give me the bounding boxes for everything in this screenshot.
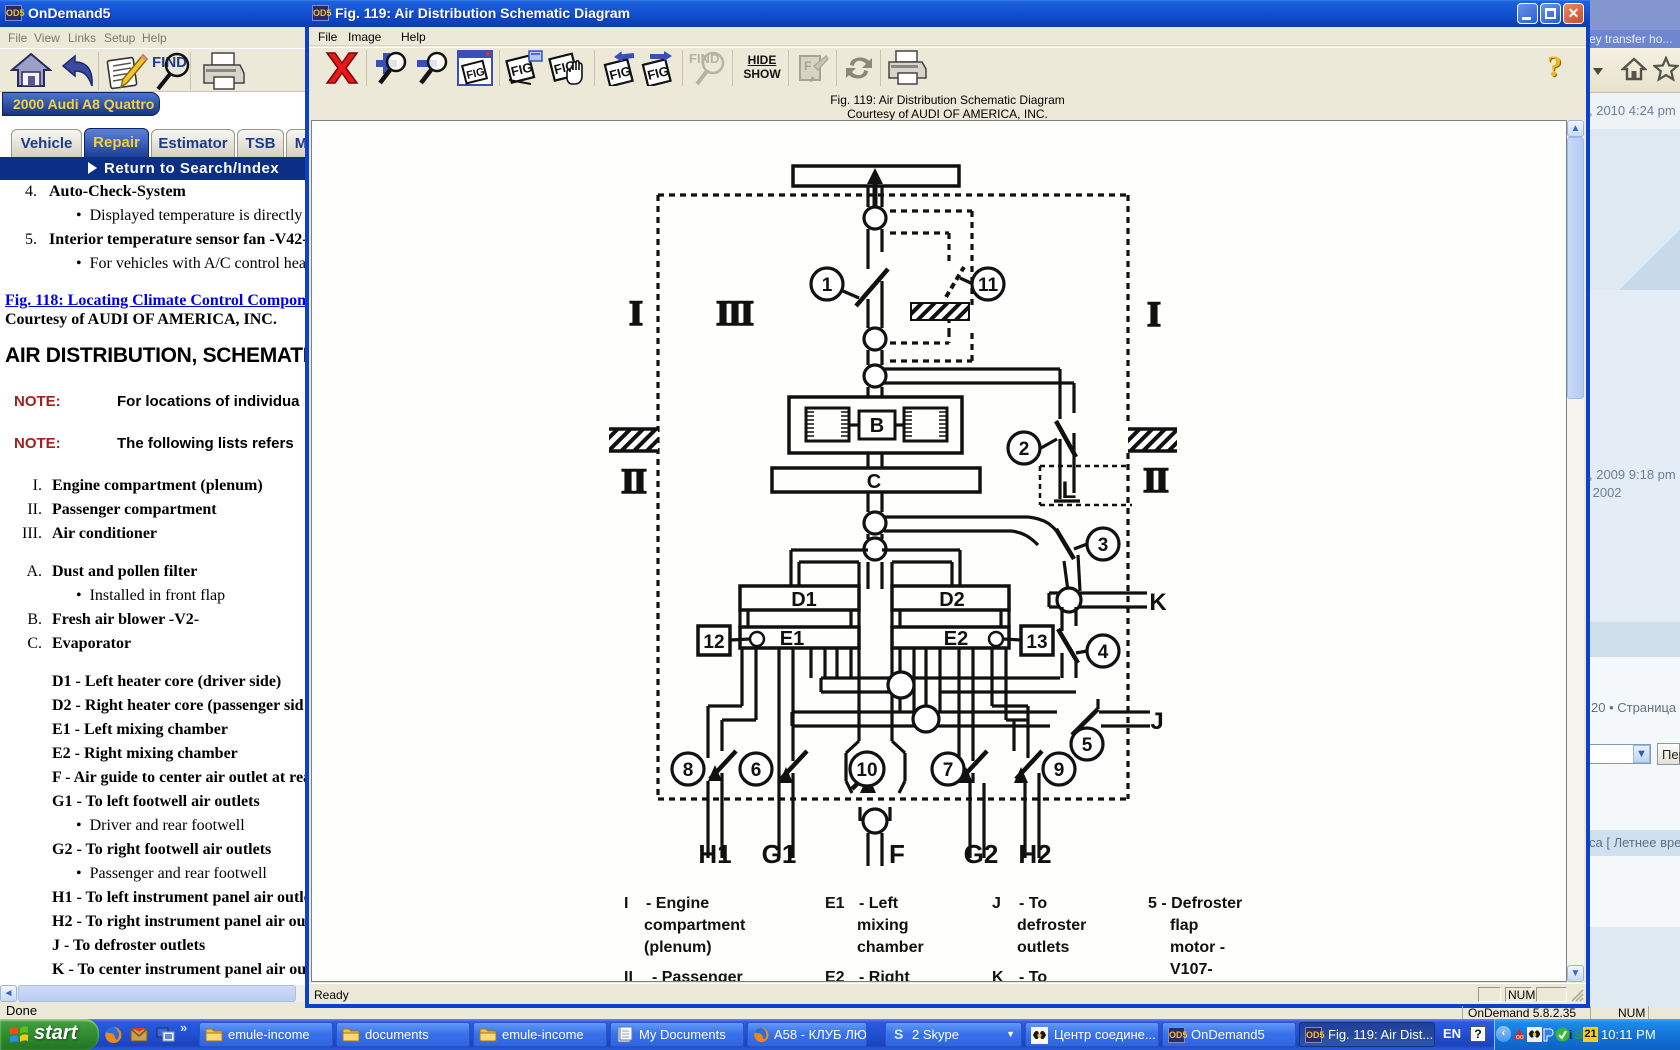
svg-text:E1: E1 — [825, 895, 845, 912]
svg-text:chamber: chamber — [857, 939, 924, 956]
svg-text:- To: - To — [1019, 895, 1047, 912]
svg-text:defroster: defroster — [1017, 917, 1086, 934]
svg-text:5: 5 — [1082, 735, 1093, 756]
svg-text:motor -: motor - — [1170, 939, 1225, 956]
svg-text:5 - Defroster: 5 - Defroster — [1148, 895, 1242, 912]
svg-text:K: K — [1149, 589, 1167, 616]
svg-text:II: II — [624, 969, 633, 982]
svg-text:13: 13 — [1026, 632, 1047, 653]
svg-text:II: II — [1143, 460, 1168, 500]
svg-text:- Right: - Right — [859, 969, 910, 982]
svg-text:- Engine: - Engine — [646, 895, 709, 912]
svg-text:C: C — [867, 471, 881, 493]
svg-text:F: F — [804, 59, 811, 73]
svg-text:L: L — [1062, 477, 1077, 504]
svg-text:J: J — [992, 895, 1001, 912]
svg-text:D2: D2 — [939, 589, 965, 611]
svg-text:E2: E2 — [944, 628, 968, 650]
svg-text:4: 4 — [1098, 642, 1109, 663]
svg-text:F: F — [889, 839, 905, 869]
svg-text:V107-: V107- — [1170, 961, 1213, 978]
svg-text:7: 7 — [943, 760, 954, 781]
svg-text:E2: E2 — [825, 969, 845, 982]
svg-text:- Left: - Left — [859, 895, 899, 912]
svg-text:12: 12 — [703, 632, 724, 653]
svg-text:8: 8 — [683, 760, 694, 781]
svg-text:mixing: mixing — [857, 917, 909, 934]
svg-text:G2: G2 — [964, 839, 999, 869]
svg-text:(plenum): (plenum) — [644, 939, 712, 956]
svg-text:flap: flap — [1170, 917, 1199, 934]
svg-text:3: 3 — [1098, 535, 1109, 556]
svg-text:II: II — [621, 461, 646, 501]
svg-text:I: I — [629, 293, 643, 333]
svg-text:9: 9 — [1054, 760, 1065, 781]
svg-text:J: J — [1150, 708, 1163, 735]
svg-text:H1: H1 — [698, 839, 731, 869]
svg-text:S: S — [1574, 1028, 1582, 1042]
svg-text:D1: D1 — [791, 589, 817, 611]
svg-text:i: i — [1569, 1028, 1572, 1042]
svg-text:H2: H2 — [1018, 839, 1051, 869]
svg-text:outlets: outlets — [1017, 939, 1070, 956]
svg-text:I: I — [624, 895, 628, 912]
svg-text:E1: E1 — [780, 628, 804, 650]
svg-text:11: 11 — [978, 275, 999, 296]
svg-text:K: K — [992, 969, 1004, 982]
svg-text:oo: oo — [1516, 1034, 1524, 1041]
svg-text:G1: G1 — [762, 839, 797, 869]
svg-text:6: 6 — [751, 760, 762, 781]
svg-text:I: I — [1147, 294, 1161, 334]
svg-text:10: 10 — [856, 760, 877, 781]
svg-text:1: 1 — [822, 275, 833, 296]
svg-text:2: 2 — [1019, 439, 1030, 460]
svg-text:B: B — [870, 415, 884, 437]
svg-text:- To: - To — [1019, 969, 1047, 982]
svg-text:compartment: compartment — [644, 917, 746, 934]
svg-text:III: III — [716, 293, 753, 333]
svg-text:- Passenger: - Passenger — [652, 969, 743, 982]
